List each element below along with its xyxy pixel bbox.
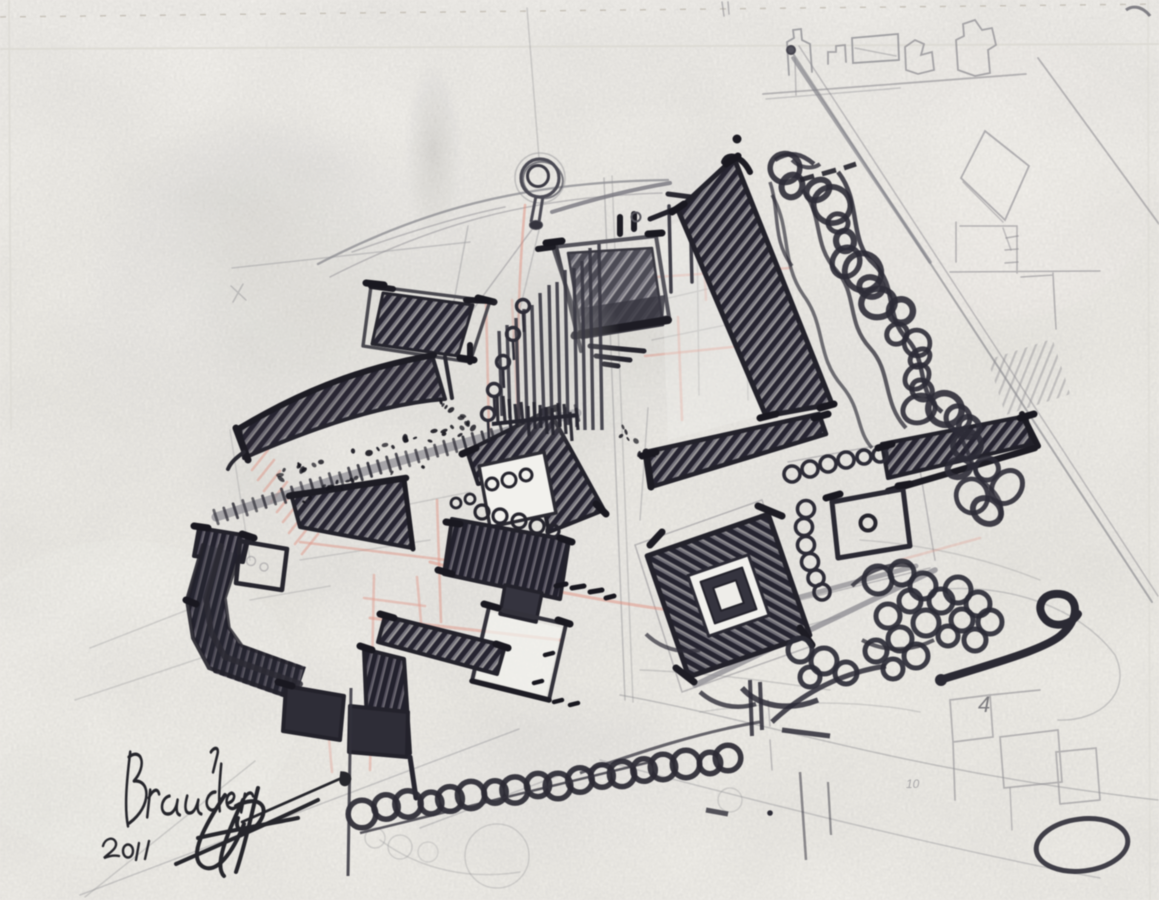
svg-text:10: 10 bbox=[906, 777, 920, 791]
svg-text:4: 4 bbox=[978, 692, 990, 717]
